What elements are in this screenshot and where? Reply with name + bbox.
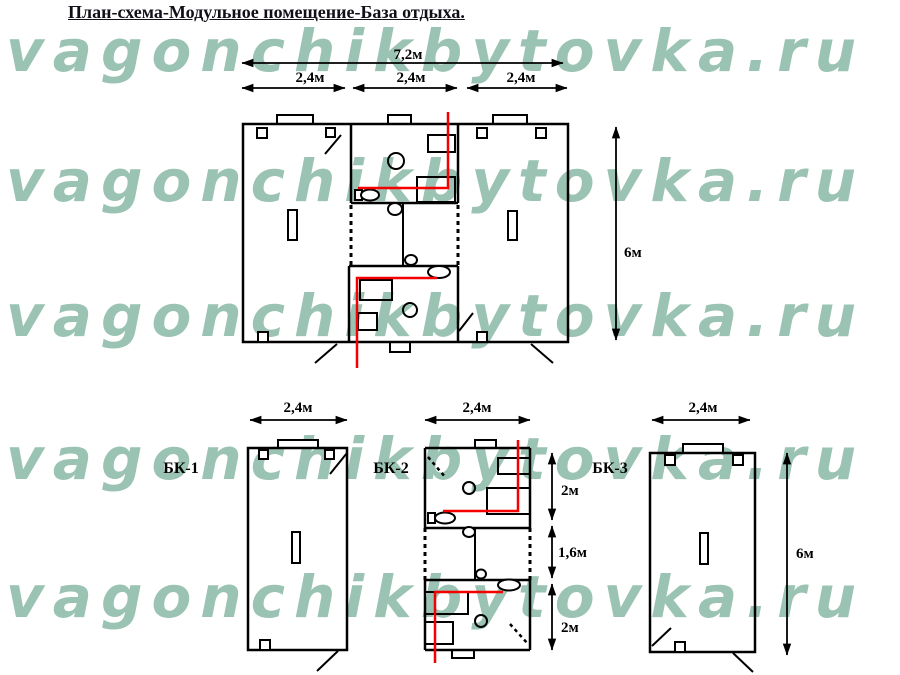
door-swing-exterior (531, 344, 553, 363)
dim-label-section-1: 2,4м (296, 70, 325, 86)
floor-plan-canvas: 7,2м 2,4м 2,4м 2,4м (0, 0, 900, 675)
dim-label-bk3-height: 6м (796, 546, 814, 562)
shower-cabin (425, 592, 468, 614)
module-bk2-label: БК-2 (373, 460, 409, 477)
toilet-bowl (361, 190, 379, 201)
toilet-bowl (428, 266, 450, 278)
sink (463, 527, 475, 537)
corner-block (477, 332, 487, 342)
dim-label-total-width: 7,2м (394, 47, 423, 63)
top-dimensions: 7,2м 2,4м 2,4м 2,4м (242, 47, 567, 88)
vent-top-right (493, 115, 527, 124)
dim-label-bk1-width: 2,4м (284, 400, 313, 416)
door-leaf (459, 313, 473, 331)
dim-label-bk2-section-3: 2м (561, 620, 579, 636)
module-bk2: БК-2 2,4м (373, 400, 587, 663)
shower-cabin (428, 135, 455, 152)
dim-label-bk2-width: 2,4м (463, 400, 492, 416)
window-left-module (288, 210, 297, 240)
vent-top-left (277, 115, 313, 124)
sink (388, 203, 402, 215)
toilet-bowl (435, 513, 455, 524)
toilet-tank (428, 513, 435, 523)
sink (388, 153, 404, 169)
dim-label-bk3-width: 2,4м (689, 400, 718, 416)
module-bk3-label: БК-3 (592, 460, 628, 477)
vent-top (683, 444, 723, 453)
vent-top-center (388, 115, 411, 124)
boiler-unit (358, 313, 377, 330)
corner-block (665, 455, 675, 465)
corner-block (733, 455, 743, 465)
window (292, 532, 300, 563)
shower-cabin (360, 280, 392, 300)
plumbing-line-lower (357, 278, 437, 368)
module-bk3: БК-3 2,4м 6м (592, 400, 813, 672)
corner-block (259, 450, 268, 459)
corner-block (325, 450, 334, 459)
corner-block (260, 640, 270, 650)
toilet (428, 513, 455, 524)
dim-label-section-3: 2,4м (507, 70, 536, 86)
vent-bottom-center (390, 342, 410, 352)
corner-block (326, 128, 335, 137)
main-plan-height-dimension: 6м (616, 127, 642, 340)
corner-block (477, 128, 487, 138)
corner-block (675, 642, 685, 652)
sink (476, 570, 486, 579)
page: vagonchikbytovka.ru vagonchikbytovka.ru … (0, 0, 900, 675)
dim-label-section-2: 2,4м (397, 70, 426, 86)
plumbing-line-upper (443, 440, 518, 511)
door-swing-exterior (317, 651, 338, 671)
corner-block (258, 332, 268, 342)
sink (405, 255, 417, 265)
corner-block (536, 128, 546, 138)
main-plan (243, 112, 568, 368)
toilet-bowl (498, 580, 520, 591)
module-bk1: БК-1 2,4м (163, 400, 347, 671)
door-leaf (652, 628, 671, 646)
toilet (355, 190, 379, 201)
sink (475, 615, 487, 627)
door-swing-exterior (315, 344, 337, 363)
corner-block (257, 128, 267, 138)
dim-label-main-height: 6м (624, 245, 642, 261)
window (700, 533, 708, 564)
door-swing-exterior (733, 653, 753, 672)
shower-cabin (498, 458, 530, 474)
dim-label-bk2-section-1: 2м (561, 483, 579, 499)
boiler-unit (425, 622, 453, 644)
shower-cabin (417, 177, 455, 202)
door-opening-dashed (510, 624, 528, 644)
module-bk1-label: БК-1 (163, 460, 199, 477)
window-right-module (508, 211, 517, 240)
dim-label-bk2-section-2: 1,6м (558, 545, 587, 561)
sink (403, 303, 417, 317)
door-opening-dashed (428, 457, 446, 478)
sink (463, 482, 475, 494)
